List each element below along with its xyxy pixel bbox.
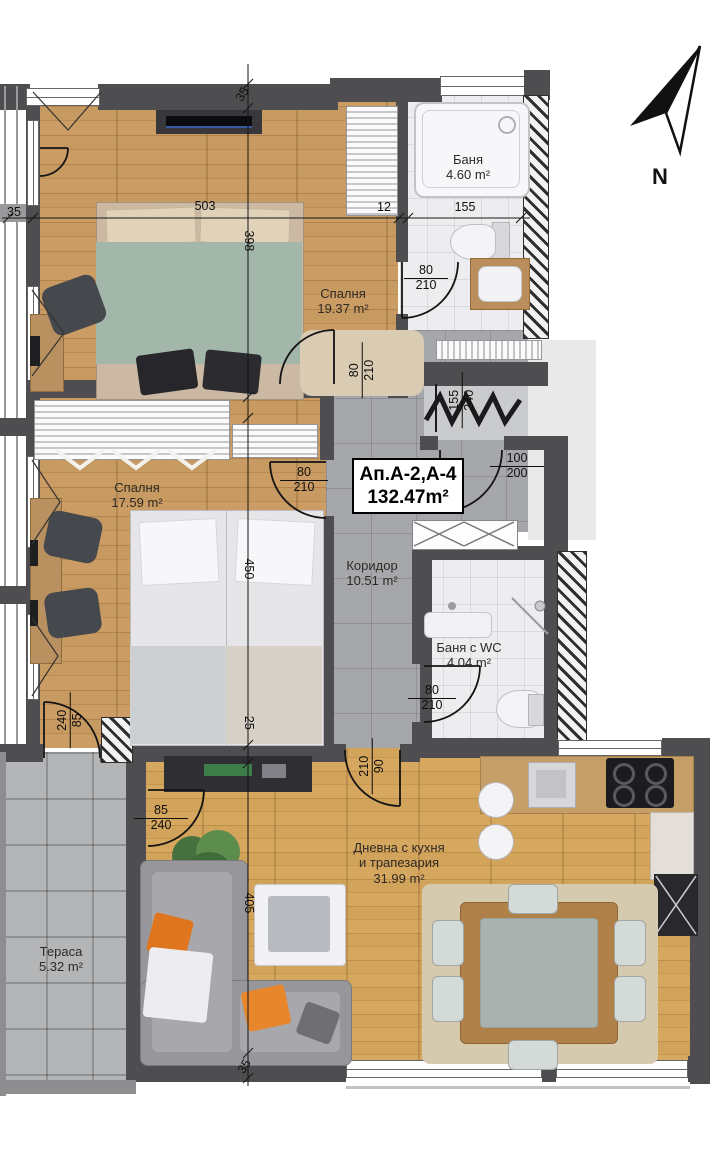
dim-door-bedroom2: 80 210 bbox=[280, 466, 328, 495]
door-height: 210 bbox=[280, 481, 328, 495]
room-name: и трапезария bbox=[326, 855, 472, 870]
door-height: 240 bbox=[56, 692, 71, 748]
room-label-living: Дневна с кухня и трапезария 31.99 m² bbox=[326, 840, 472, 886]
room-name: Тераса bbox=[18, 944, 104, 959]
room-name: Баня с WC bbox=[416, 640, 522, 655]
dim-door-living: 210 90 bbox=[358, 738, 387, 794]
closet-x bbox=[414, 522, 514, 546]
room-label-bath: Баня 4.60 m² bbox=[418, 152, 518, 183]
north-arrow-icon bbox=[630, 46, 700, 152]
room-name: Баня bbox=[418, 152, 518, 167]
dim-door-bedroom1: 80 210 bbox=[348, 342, 377, 398]
unit-name: Ап.А-2,А-4 bbox=[356, 463, 460, 486]
door-width: 90 bbox=[373, 738, 387, 794]
door-width: 80 bbox=[404, 264, 448, 279]
dimension-lines bbox=[2, 64, 530, 1086]
room-area: 5.32 m² bbox=[39, 959, 83, 974]
room-label-bath-wc: Баня с WC 4.04 m² bbox=[416, 640, 522, 671]
unit-title-box: Ап.А-2,А-4 132.47m² bbox=[352, 458, 464, 514]
door-width: 100 bbox=[490, 452, 544, 467]
room-area: 4.04 m² bbox=[447, 655, 491, 670]
door-width: 85 bbox=[71, 692, 85, 748]
dim-door-living-terrace: 85 240 bbox=[134, 804, 188, 833]
dim-door-bedroom2-terrace: 240 85 bbox=[56, 692, 85, 748]
floor-plan: Баня 4.60 m² Спалня 19.37 m² Спалня 17.5… bbox=[0, 0, 725, 1170]
room-label-bedroom2: Спалня 17.59 m² bbox=[82, 480, 192, 511]
dim-155: 155 bbox=[440, 201, 490, 215]
door-width: 80 bbox=[408, 684, 456, 699]
dim-door-entry: 100 200 bbox=[490, 452, 544, 481]
dim-door-wc: 80 210 bbox=[408, 684, 456, 713]
dim-wall-left: 35 bbox=[0, 206, 28, 220]
door-height: 210 bbox=[363, 342, 377, 398]
door-width: 80 bbox=[280, 466, 328, 481]
door-height: 210 bbox=[408, 699, 456, 713]
door-height: 240 bbox=[134, 819, 188, 833]
door-height: 210 bbox=[358, 738, 373, 794]
shaft-height: 240 bbox=[463, 372, 477, 428]
dim-450: 450 bbox=[241, 551, 255, 587]
dim-12: 12 bbox=[372, 201, 396, 215]
dim-503: 503 bbox=[170, 200, 240, 214]
dim-door-bath: 80 210 bbox=[404, 264, 448, 293]
room-area: 10.51 m² bbox=[346, 573, 397, 588]
room-area: 17.59 m² bbox=[111, 495, 162, 510]
room-area: 31.99 m² bbox=[373, 871, 424, 886]
hanger-chevrons bbox=[56, 450, 216, 468]
room-area: 4.60 m² bbox=[446, 167, 490, 182]
window-marks bbox=[32, 92, 101, 696]
shower-symbol bbox=[448, 598, 548, 634]
dim-405: 405 bbox=[241, 885, 255, 921]
room-label-corridor: Коридор 10.51 m² bbox=[322, 558, 422, 589]
dim-shaft: 155 240 bbox=[448, 372, 477, 428]
dim-398: 398 bbox=[241, 223, 255, 259]
room-label-bedroom1: Спалня 19.37 m² bbox=[288, 286, 398, 317]
door-width: 80 bbox=[348, 342, 363, 398]
shaft-width: 155 bbox=[448, 372, 463, 428]
room-name: Коридор bbox=[322, 558, 422, 573]
room-label-terrace: Тераса 5.32 m² bbox=[18, 944, 104, 975]
tv-unit-x bbox=[656, 876, 696, 934]
north-label: N bbox=[640, 164, 680, 190]
room-name: Спалня bbox=[82, 480, 192, 495]
dim-25: 25 bbox=[241, 709, 255, 737]
room-name: Спалня bbox=[288, 286, 398, 301]
room-area: 19.37 m² bbox=[317, 301, 368, 316]
room-name: Дневна с кухня bbox=[326, 840, 472, 855]
unit-area: 132.47m² bbox=[367, 487, 448, 508]
door-width: 85 bbox=[134, 804, 188, 819]
door-height: 200 bbox=[490, 467, 544, 481]
door-height: 210 bbox=[404, 279, 448, 293]
